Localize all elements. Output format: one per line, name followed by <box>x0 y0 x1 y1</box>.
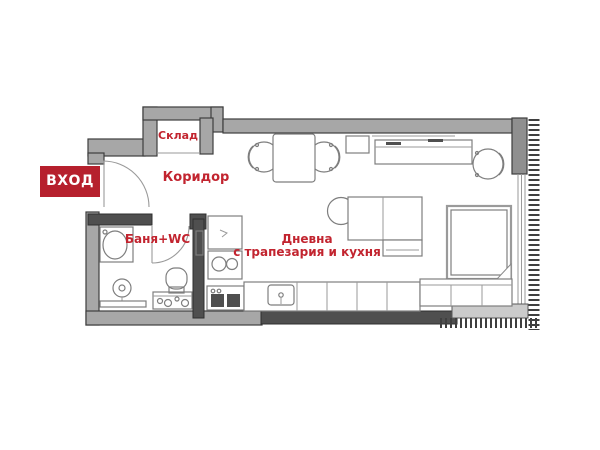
desk-item <box>428 139 443 142</box>
wall-segment <box>223 119 512 133</box>
room-label-living-line2: с трапезария и кухня <box>230 246 384 259</box>
kitchen-counter <box>244 282 420 311</box>
sink-unit-knob <box>217 289 221 293</box>
bed-body <box>447 206 511 279</box>
entrance-door <box>103 161 149 207</box>
desk-item <box>386 142 401 145</box>
sink-basin <box>227 294 240 307</box>
bathroom-wall <box>88 214 152 225</box>
wall-segment <box>86 212 99 325</box>
wall-cabinet <box>346 136 369 153</box>
desk-chair <box>473 149 503 179</box>
wall-segment <box>88 153 104 164</box>
bed <box>447 206 511 279</box>
bench <box>420 279 512 306</box>
shower-head-center <box>119 285 125 291</box>
washing-machine <box>153 292 192 309</box>
bench-body <box>420 279 512 306</box>
shower-drain <box>100 301 146 307</box>
window-right <box>518 174 525 304</box>
counter-run <box>244 282 420 311</box>
room-label-storage: Склад <box>153 129 203 142</box>
desk-area <box>346 136 504 179</box>
entrance-door-arc <box>103 161 149 207</box>
room-label-corridor: Коридор <box>158 170 234 185</box>
toilet <box>166 268 187 293</box>
shower-head <box>113 279 131 297</box>
room-label-bathroom: Баня+WC <box>120 232 195 246</box>
wall-segment <box>261 311 457 324</box>
kitchen-sink-unit <box>207 286 244 310</box>
sink-basin <box>211 294 224 307</box>
wall-corner-column <box>512 118 527 174</box>
dining-set <box>248 134 340 182</box>
shower <box>100 279 146 307</box>
washer-knob <box>158 299 163 304</box>
dining-table <box>273 134 315 182</box>
floor-plan: ВХОД Склад Коридор Баня+WC Дневна с трап… <box>0 0 600 450</box>
entrance-badge: ВХОД <box>40 166 100 197</box>
washer-knob <box>165 300 172 307</box>
sofa-chaise <box>383 240 422 256</box>
toilet-bowl <box>166 268 187 289</box>
sink-unit-knob <box>211 289 215 293</box>
floor-plan-drawing <box>0 0 600 450</box>
wall-segment <box>86 311 262 325</box>
room-label-living: Дневна с трапезария и кухня <box>230 233 384 259</box>
washer-drum <box>182 300 189 307</box>
washer-knob <box>175 297 179 301</box>
